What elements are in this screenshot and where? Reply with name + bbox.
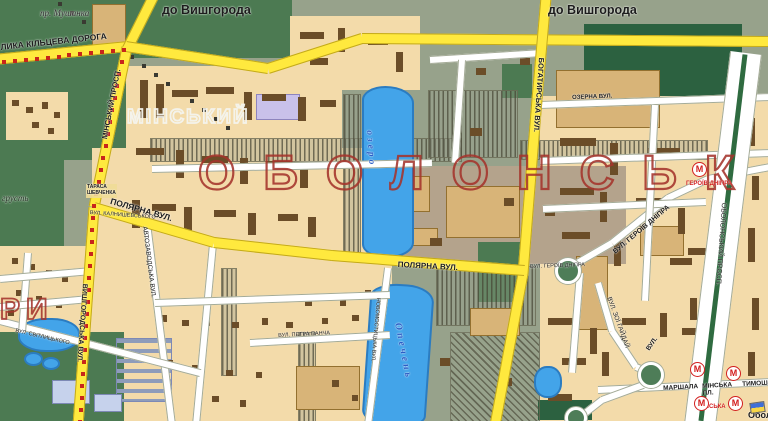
district-boundary-dash bbox=[81, 372, 85, 376]
building bbox=[520, 58, 530, 65]
road-label-tymoshenka: ТИМОШЕНКА bbox=[742, 379, 768, 388]
building bbox=[206, 87, 234, 94]
district-boundary-dash bbox=[90, 240, 94, 244]
building bbox=[256, 372, 262, 378]
pond-small-2 bbox=[42, 357, 60, 370]
building bbox=[48, 128, 54, 134]
district-boundary-dash bbox=[79, 408, 83, 412]
building bbox=[322, 318, 328, 324]
building bbox=[286, 322, 293, 328]
building bbox=[748, 352, 755, 376]
building bbox=[32, 122, 39, 128]
roundabout-minska bbox=[638, 362, 664, 388]
building bbox=[476, 68, 486, 75]
building bbox=[470, 128, 482, 136]
building bbox=[332, 380, 339, 387]
building bbox=[622, 318, 646, 325]
building bbox=[562, 232, 590, 239]
building bbox=[590, 328, 597, 354]
district-boundary-dash bbox=[101, 156, 105, 160]
district-boundary-dash bbox=[92, 204, 96, 208]
building bbox=[12, 258, 18, 264]
metro-icon-minska-nw: М bbox=[690, 362, 705, 377]
district-boundary-dash bbox=[99, 168, 103, 172]
district-boundary-dash bbox=[91, 216, 95, 220]
park-trail-dot bbox=[154, 73, 158, 77]
building bbox=[26, 107, 33, 113]
district-boundary-dash bbox=[46, 56, 50, 60]
pond-small-1 bbox=[24, 352, 43, 366]
building bbox=[430, 238, 442, 246]
building bbox=[560, 138, 596, 146]
building bbox=[300, 32, 324, 39]
building bbox=[262, 318, 268, 325]
building bbox=[352, 395, 358, 401]
metro-icon-minska-ne: М bbox=[726, 366, 741, 381]
district-name-minsky: МІНСЬКИЙ bbox=[127, 106, 249, 129]
road-label-polyarna-east: ПОЛЯРНА ВУЛ. bbox=[398, 260, 459, 272]
building bbox=[396, 52, 403, 72]
building bbox=[42, 102, 48, 109]
pond-east bbox=[534, 366, 562, 398]
metro-icon-minska-se: М bbox=[728, 396, 743, 411]
building bbox=[352, 315, 359, 321]
direction-vyshhorod-west: до Вишгорода bbox=[162, 3, 251, 17]
district-boundary-dash bbox=[111, 49, 115, 53]
industrial-building bbox=[94, 394, 122, 412]
district-boundary-dash bbox=[89, 252, 93, 256]
main-road bbox=[362, 33, 768, 47]
district-boundary-dash bbox=[87, 276, 91, 280]
building bbox=[320, 100, 336, 107]
park-trail-dot bbox=[142, 64, 146, 68]
building bbox=[748, 228, 755, 262]
district-boundary-dash bbox=[78, 52, 82, 56]
metro-icon-heroiv-dnipra: М bbox=[692, 162, 707, 177]
building bbox=[440, 358, 450, 366]
park-trail-dot bbox=[166, 82, 170, 86]
district-boundary-dash bbox=[89, 51, 93, 55]
park-strip-left bbox=[0, 160, 64, 256]
map-canvas[interactable]: ОБОЛОНСЬК РИ МІНСЬКИЙ пр. Мушанка до Виш… bbox=[0, 0, 768, 421]
square-label-minska: МІНСЬКА ПЛ. bbox=[702, 381, 733, 397]
district-boundary-dash bbox=[24, 58, 28, 62]
district-boundary-dash bbox=[122, 48, 126, 52]
building bbox=[226, 370, 233, 376]
district-boundary-dash bbox=[35, 57, 39, 61]
district-boundary-dash bbox=[100, 50, 104, 54]
building bbox=[248, 213, 256, 235]
district-boundary-dash bbox=[104, 144, 108, 148]
building bbox=[214, 210, 236, 217]
building bbox=[298, 97, 306, 121]
district-boundary-dash bbox=[88, 264, 92, 268]
building bbox=[678, 208, 685, 234]
metro-label-heroiv-dnipra: ГЕРОЇВ ДНІПРА bbox=[686, 181, 732, 187]
building bbox=[240, 400, 246, 407]
park-trail-dot bbox=[190, 99, 194, 103]
district-boundary-dash bbox=[2, 60, 6, 64]
district-boundary-dash bbox=[80, 384, 84, 388]
ukraine-flag-icon bbox=[749, 401, 765, 414]
direction-vyshhorod-east: до Вишгорода bbox=[548, 3, 637, 17]
district-boundary-dash bbox=[120, 60, 124, 64]
building bbox=[136, 148, 164, 155]
locality-label-kyn-hrust: грусть bbox=[2, 193, 28, 203]
river-label: пр. Мушанка bbox=[40, 8, 89, 18]
district-boundary-dash bbox=[57, 55, 61, 59]
building bbox=[232, 322, 239, 328]
building bbox=[660, 313, 667, 337]
building bbox=[262, 94, 286, 101]
building bbox=[340, 300, 346, 306]
building bbox=[670, 258, 692, 265]
building bbox=[602, 352, 609, 376]
building bbox=[690, 298, 697, 320]
square-label-shevchenka: ТАРАСА ШЕВЧЕНКА bbox=[86, 184, 117, 198]
building bbox=[172, 90, 198, 97]
building bbox=[54, 112, 60, 118]
district-boundary-dash bbox=[67, 53, 71, 57]
industrial-building bbox=[296, 366, 360, 410]
district-boundary-dash bbox=[90, 228, 94, 232]
district-name-obolon: ОБОЛОНСЬК bbox=[198, 146, 762, 201]
metro-icon-minska-sw: М bbox=[694, 396, 709, 411]
building bbox=[278, 214, 298, 221]
building bbox=[308, 217, 316, 237]
building bbox=[182, 320, 189, 326]
building bbox=[212, 396, 219, 402]
district-boundary-dash bbox=[13, 59, 17, 63]
building bbox=[12, 100, 19, 106]
park-trail-dot bbox=[82, 20, 86, 24]
park-trail-dot bbox=[58, 2, 62, 6]
building bbox=[752, 298, 759, 330]
district-boundary-dash bbox=[80, 396, 84, 400]
district-name-partial: РИ bbox=[0, 293, 54, 327]
